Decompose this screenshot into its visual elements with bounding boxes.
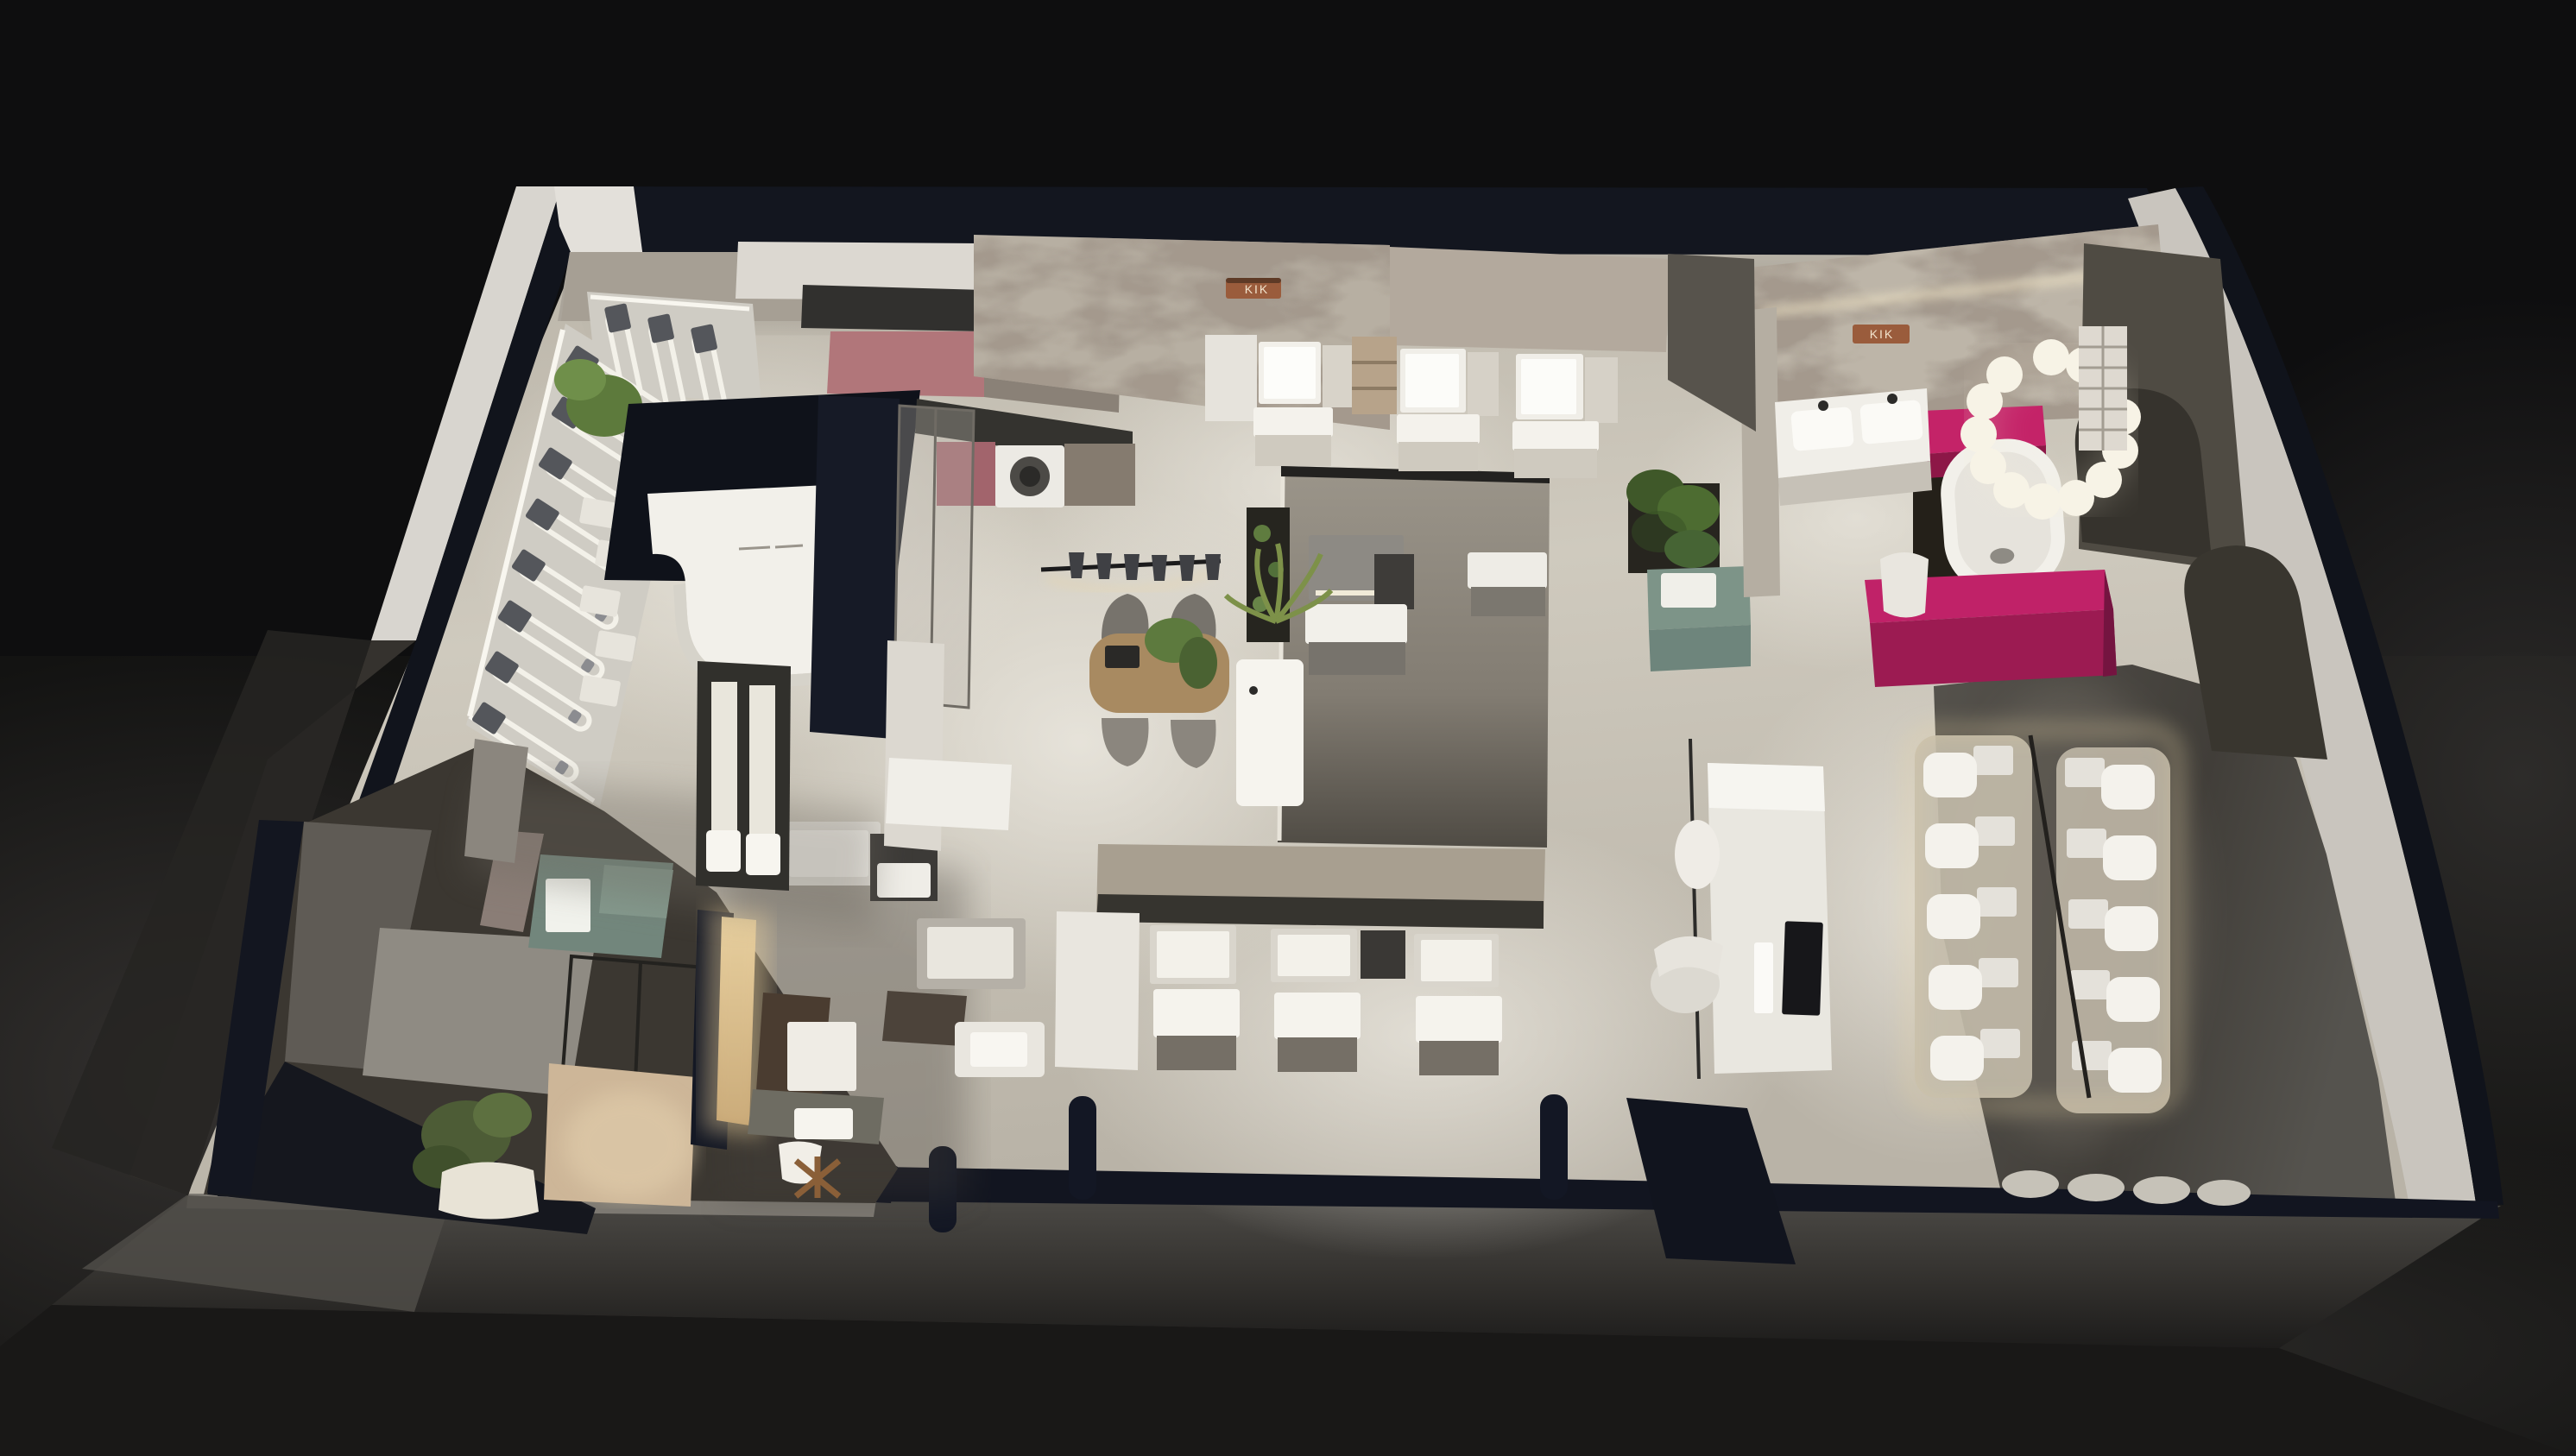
svg-text:KIK: KIK	[1870, 327, 1895, 341]
svg-text:KIK: KIK	[1245, 282, 1270, 296]
